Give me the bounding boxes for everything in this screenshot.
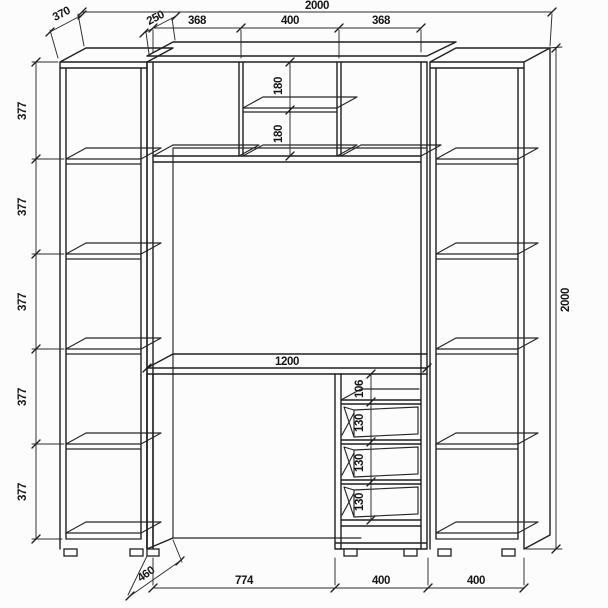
dim-desk-width: 1200 xyxy=(143,356,431,372)
dim-left-depth: 370 xyxy=(46,5,86,58)
dim-label-hutch-shelf-upper: 180 xyxy=(273,77,285,95)
dim-bottom-widths: 774 400 400 xyxy=(149,558,528,592)
dim-label-shelf-5: 377 xyxy=(17,483,29,501)
dim-overall-height-lines xyxy=(526,47,562,549)
drawer-unit-top-shelf xyxy=(341,389,419,400)
drawer-unit-foot-left xyxy=(344,549,357,556)
right-bookcase-foot-right xyxy=(502,549,515,556)
drawing-canvas: 370 250 2000 368 400 368 377 377 377 377… xyxy=(0,0,608,608)
dim-label-shelf-2: 377 xyxy=(17,198,29,216)
dim-label-hutch-center: 400 xyxy=(281,15,299,27)
dim-label-desk-depth: 460 xyxy=(135,564,157,584)
left-bookcase-foot-left xyxy=(64,549,77,556)
drawer-unit xyxy=(335,374,427,556)
dim-hutch-sections: 368 400 368 xyxy=(149,15,425,58)
dim-overall-height: 2000 xyxy=(526,44,572,553)
dim-label-shelf-4: 377 xyxy=(17,388,29,406)
desk-foot xyxy=(147,549,159,556)
furniture-dimension-drawing: 370 250 2000 368 400 368 377 377 377 377… xyxy=(0,0,608,608)
dim-label-overall-height: 2000 xyxy=(560,288,572,312)
dim-label-drawer-3: 130 xyxy=(354,493,366,511)
dim-label-shelf-3: 377 xyxy=(17,293,29,311)
dim-label-shelf-1: 377 xyxy=(17,102,29,120)
dim-label-kneehole-width: 774 xyxy=(235,575,254,587)
dim-left-shelf-chain-lines xyxy=(32,62,64,539)
hutch-interior xyxy=(153,97,441,156)
dim-label-overall-width: 2000 xyxy=(305,0,329,12)
left-bookcase xyxy=(60,48,173,556)
dim-label-drawer-top: 106 xyxy=(354,380,366,398)
right-bookcase-carcass xyxy=(430,48,550,549)
dim-label-drawer-2: 130 xyxy=(354,454,366,472)
dim-label-hutch-right: 368 xyxy=(372,15,391,27)
dim-label-desk-width: 1200 xyxy=(275,356,299,368)
left-bookcase-carcass xyxy=(60,48,173,549)
dim-label-drawer-unit-width: 400 xyxy=(372,575,390,587)
dim-left-shelf-chain: 377 377 377 377 377 xyxy=(17,58,64,543)
dim-label-hutch-left: 368 xyxy=(188,15,207,27)
dim-hutch-depth: 250 xyxy=(140,9,180,54)
left-bookcase-foot-right xyxy=(130,549,143,556)
dim-hutch-sections-lines xyxy=(153,28,421,58)
dim-label-hutch-shelf-lower: 180 xyxy=(273,125,285,143)
right-bookcase-shelves xyxy=(436,148,538,539)
dim-label-left-depth: 370 xyxy=(51,5,72,24)
dim-label-right-case-width: 400 xyxy=(467,575,485,587)
dim-label-drawer-1: 130 xyxy=(354,414,366,432)
right-bookcase-foot-left xyxy=(438,549,451,556)
hutch-carcass xyxy=(147,42,456,549)
wall-hutch xyxy=(147,42,456,549)
right-bookcase xyxy=(430,48,550,556)
dim-drawer-stack: 106 130 130 130 xyxy=(354,370,375,524)
drawer-unit-foot-right xyxy=(404,549,417,556)
